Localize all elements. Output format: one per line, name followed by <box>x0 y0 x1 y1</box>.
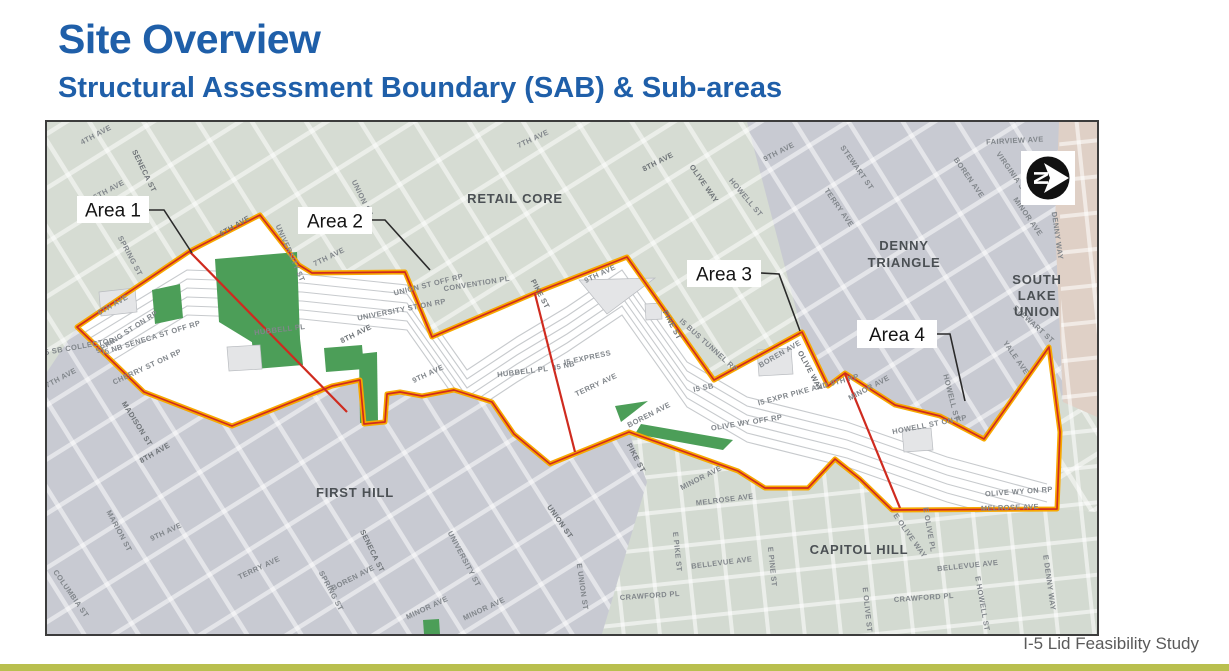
slide: Site Overview Structural Assessment Boun… <box>0 0 1229 671</box>
district-label: TRIANGLE <box>868 255 941 270</box>
map: 4TH AVESENECA ST5TH AVESPRING ST6TH AVES… <box>45 120 1099 636</box>
area-label-text: Area 1 <box>85 201 141 222</box>
footer-text: I-5 Lid Feasibility Study <box>1023 634 1199 654</box>
district-label: CAPITOL HILL <box>810 542 909 557</box>
area-label-text: Area 2 <box>307 212 363 233</box>
district-label: SOUTH <box>1012 272 1062 287</box>
page-title: Site Overview <box>58 16 320 63</box>
district-label: RETAIL CORE <box>467 191 563 206</box>
site-map-svg: 4TH AVESENECA ST5TH AVESPRING ST6TH AVES… <box>47 122 1097 634</box>
district-label: UNION <box>1014 304 1060 319</box>
bottom-accent-bar <box>0 664 1229 671</box>
park <box>324 345 364 372</box>
area-label-text: Area 4 <box>869 325 925 346</box>
park <box>423 619 440 634</box>
district-label: LAKE <box>1018 288 1057 303</box>
district-label: FIRST HILL <box>316 485 394 500</box>
north-arrow-icon: N <box>1021 151 1075 205</box>
area-label-text: Area 3 <box>696 265 752 286</box>
park <box>152 284 183 324</box>
page-subtitle: Structural Assessment Boundary (SAB) & S… <box>58 72 782 105</box>
building <box>227 345 262 371</box>
district-label: DENNY <box>879 238 929 253</box>
north-arrow-n: N <box>1029 171 1051 185</box>
